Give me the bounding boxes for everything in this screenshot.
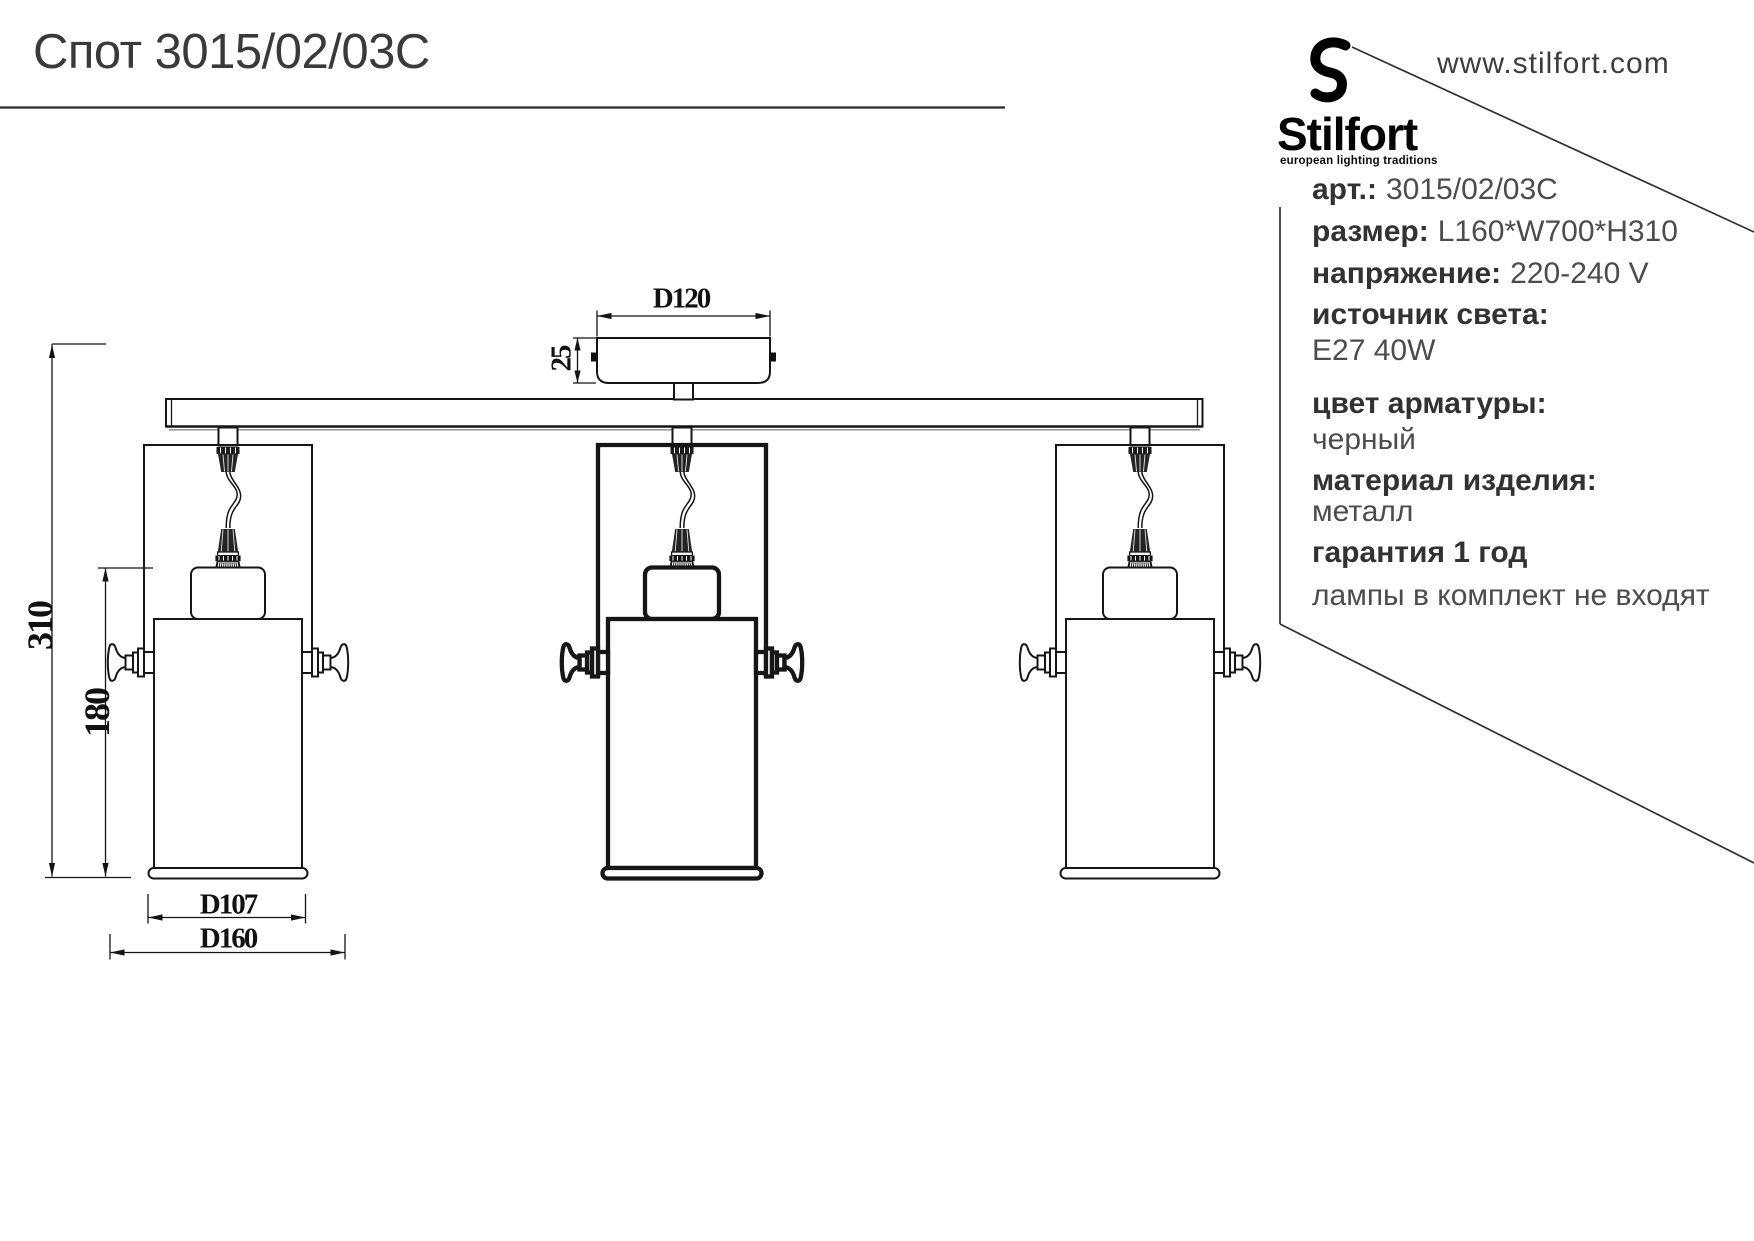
dimension-shade-diameter: D107 <box>200 889 256 922</box>
brand-name: Stilfort <box>1277 107 1417 161</box>
spec-row-lamp-type: E27 40W <box>1312 331 1435 371</box>
brand-tagline: european lighting traditions <box>1280 155 1438 167</box>
lamp-left <box>108 445 348 879</box>
spec-row-warranty: гарантия 1 год <box>1312 533 1536 573</box>
dimension-shade-height: 180 <box>76 689 118 737</box>
spec-row-voltage: напряжение:220-240 V <box>1312 254 1649 294</box>
spec-row-frame-color: цвет арматуры: <box>1312 384 1556 424</box>
dimension-total-width: D160 <box>200 923 256 956</box>
lamp-right <box>1020 445 1260 879</box>
stilfort-s-icon <box>1315 43 1345 98</box>
dimension-canopy-diameter: D120 <box>653 283 709 316</box>
ceiling-canopy <box>591 338 776 400</box>
website-url: www.stilfort.com <box>1437 47 1670 81</box>
spec-row-size: размер:L160*W700*H310 <box>1312 212 1678 252</box>
spec-row-material-value: металл <box>1312 492 1413 532</box>
spec-row-color-value: черный <box>1312 420 1416 460</box>
spec-row-lamps-note: лампы в комплект не входят <box>1312 576 1710 616</box>
spec-row-light-source: источник света: <box>1312 295 1558 335</box>
fixture-bar <box>166 399 1203 430</box>
spec-row-art: арт.:3015/02/03C <box>1312 170 1558 210</box>
spec-sheet: { "title": "Спот 3015/02/03C", "brand": … <box>0 0 1754 1241</box>
dimension-total-height: 310 <box>19 602 61 650</box>
dimension-canopy-height: 25 <box>546 347 579 372</box>
page-title: Спот 3015/02/03C <box>33 24 430 80</box>
lamp-center <box>562 445 802 879</box>
